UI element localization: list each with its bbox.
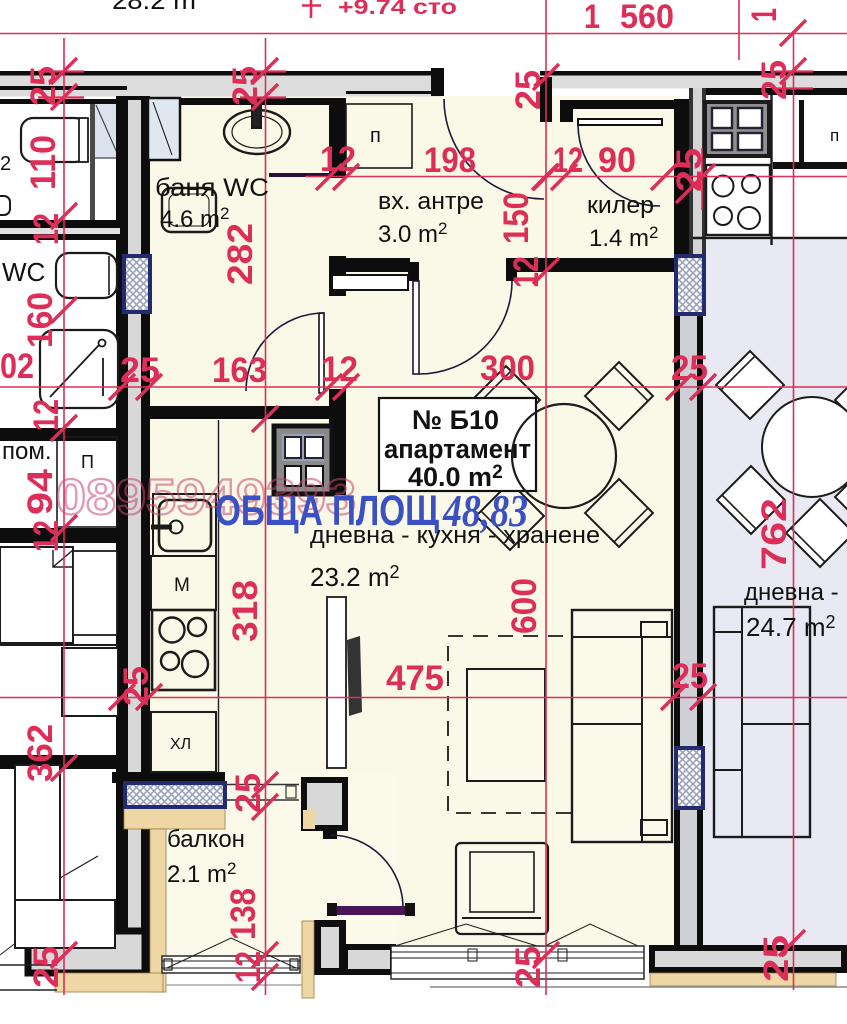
svg-text:90: 90 (598, 141, 636, 180)
svg-text:762: 762 (755, 498, 794, 570)
svg-text:28.2 m: 28.2 m (112, 0, 196, 15)
svg-text:150: 150 (497, 192, 536, 244)
svg-text:пом.: пом. (2, 438, 52, 465)
svg-text:25: 25 (509, 946, 548, 988)
svg-text:килер: килер (587, 192, 654, 219)
svg-text:25: 25 (755, 60, 794, 100)
svg-text:12: 12 (27, 399, 66, 431)
svg-text:+9.74 сто: +9.74 сто (338, 0, 457, 19)
svg-text:12: 12 (507, 256, 546, 288)
svg-text:23.2 m2: 23.2 m2 (310, 562, 400, 592)
svg-text:12: 12 (553, 141, 583, 180)
svg-text:25: 25 (757, 935, 796, 982)
svg-text:25: 25 (670, 148, 709, 192)
svg-text:балкон: балкон (167, 826, 245, 853)
svg-text:2: 2 (0, 153, 11, 175)
svg-text:25: 25 (117, 666, 156, 706)
svg-text:600: 600 (505, 578, 544, 634)
svg-text:апартамент: апартамент (384, 434, 531, 464)
svg-text:вх. антре: вх. антре (378, 188, 484, 215)
svg-text:02: 02 (0, 347, 34, 386)
svg-text:12: 12 (320, 140, 356, 179)
svg-text:163: 163 (212, 351, 267, 390)
svg-text:1: 1 (745, 8, 784, 22)
svg-text:25: 25 (24, 66, 63, 106)
svg-text:№ Б10: № Б10 (412, 405, 499, 435)
svg-text:П: П (81, 452, 94, 472)
svg-text:12: 12 (321, 350, 358, 389)
svg-text:25: 25 (226, 66, 265, 106)
svg-text:ХЛ: ХЛ (170, 736, 191, 753)
svg-text:WC: WC (2, 257, 45, 287)
svg-text:баня WC: баня WC (155, 174, 269, 202)
svg-text:1: 1 (584, 0, 600, 36)
svg-text:560: 560 (620, 0, 674, 36)
svg-text:25: 25 (120, 351, 160, 390)
svg-text:25: 25 (671, 349, 708, 388)
svg-text:198: 198 (424, 141, 476, 180)
svg-text:3.0 m2: 3.0 m2 (378, 219, 448, 248)
svg-text:1.4 m2: 1.4 m2 (589, 223, 659, 252)
svg-text:110: 110 (24, 135, 63, 190)
svg-text:24.7 m2: 24.7 m2 (746, 612, 836, 642)
svg-text:М: М (174, 575, 190, 596)
svg-text:282: 282 (221, 223, 260, 285)
svg-text:2.1 m2: 2.1 m2 (167, 859, 237, 888)
svg-text:160: 160 (21, 292, 60, 348)
svg-text:25: 25 (509, 70, 548, 110)
svg-text:25: 25 (229, 773, 268, 813)
svg-text:300: 300 (480, 349, 535, 388)
svg-text:п: п (370, 125, 381, 147)
svg-text:94: 94 (21, 468, 60, 515)
svg-text:4.6 m2: 4.6 m2 (160, 204, 230, 233)
svg-text:12: 12 (229, 951, 268, 983)
svg-text:25: 25 (27, 946, 66, 988)
svg-text:25: 25 (672, 657, 708, 696)
svg-text:дневна -: дневна - (744, 579, 839, 606)
svg-text:475: 475 (386, 659, 444, 698)
svg-text:п: п (830, 126, 839, 145)
svg-text:12: 12 (27, 213, 66, 245)
svg-text:дневна - кухня - хранене: дневна - кухня - хранене (310, 522, 600, 549)
svg-text:362: 362 (21, 724, 60, 782)
svg-text:138: 138 (224, 888, 263, 940)
svg-text:318: 318 (226, 580, 265, 642)
